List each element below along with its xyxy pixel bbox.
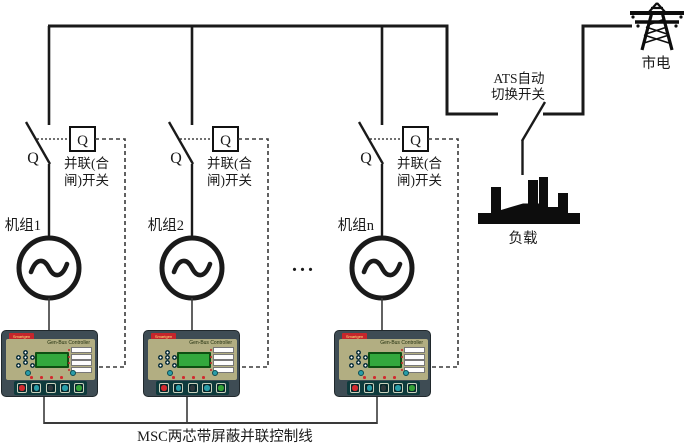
- status-led: [30, 376, 33, 379]
- nav-down-button: [356, 360, 361, 365]
- lcd-screen: [35, 352, 69, 368]
- unit-1-breaker-caption-line2: 闸)开关: [64, 173, 109, 188]
- unit-n-name-label: 机组n: [338, 217, 375, 234]
- nav-center-button: [23, 355, 28, 360]
- generator-bus-wire: [48, 26, 498, 114]
- unit-n-breaker-caption-line2: 闸)开关: [397, 173, 442, 188]
- stop-button: [350, 383, 360, 393]
- lcd-screen: [177, 352, 211, 368]
- test-button: [393, 383, 403, 393]
- auto-button: [188, 383, 198, 393]
- controller-button-row: [156, 381, 229, 395]
- aux-button-left: [349, 363, 354, 368]
- auto-button: [379, 383, 389, 393]
- unit-1-breaker-box-label: Q: [77, 133, 88, 149]
- status-led: [40, 376, 43, 379]
- msc-control-bus-caption: MSC两芯带屏蔽并联控制线: [137, 428, 313, 445]
- unit-2-breaker-box-label: Q: [220, 133, 231, 149]
- status-led: [172, 376, 175, 379]
- start-button: [407, 383, 417, 393]
- controller-model-label: Gen-Bus Controller: [380, 340, 423, 346]
- label-strip-2: [213, 354, 234, 360]
- utility-label: 市电: [642, 55, 671, 72]
- unit-1-breaker-caption-line1: 并联(合: [64, 156, 109, 171]
- unit-n-blade-label: Q: [360, 150, 372, 167]
- lcd-screen: [368, 352, 402, 368]
- unit-2-breaker-caption-line2: 闸)开关: [207, 173, 252, 188]
- status-led: [182, 376, 185, 379]
- unit-2-breaker-caption-line1: 并联(合: [207, 156, 252, 171]
- ats-label-line2: 切换开关: [491, 87, 545, 102]
- aux-button-left: [16, 363, 21, 368]
- status-led: [50, 376, 53, 379]
- label-strip-2: [404, 354, 425, 360]
- stop-button: [159, 383, 169, 393]
- controller-unit-2: Smartgen Gen-Bus Controller: [143, 330, 240, 397]
- status-led: [192, 376, 195, 379]
- manual-button: [173, 383, 183, 393]
- aux-button-left: [158, 363, 163, 368]
- nav-center-button: [356, 355, 361, 360]
- test-button: [202, 383, 212, 393]
- round-button-right: [212, 370, 218, 376]
- controller-button-row: [347, 381, 420, 395]
- load-factory-icon: [478, 177, 580, 224]
- label-strip-1: [71, 347, 92, 353]
- auto-button: [46, 383, 56, 393]
- start-button: [74, 383, 84, 393]
- label-strip-3: [404, 360, 425, 366]
- controller-button-row: [14, 381, 87, 395]
- ats-switch-blade: [522, 102, 545, 141]
- nav-center-button: [165, 355, 170, 360]
- round-button-right: [70, 370, 76, 376]
- controller-model-label: Gen-Bus Controller: [47, 340, 90, 346]
- ats-label-line1: ATS自动: [493, 71, 544, 86]
- utility-tower-icon: [630, 3, 684, 50]
- unit-n-breaker-box-label: Q: [410, 133, 421, 149]
- nav-left-button: [16, 355, 21, 360]
- start-button: [216, 383, 226, 393]
- unit-1-blade-label: Q: [27, 150, 39, 167]
- unit-2-name-label: 机组2: [148, 217, 184, 234]
- label-strip-3: [71, 360, 92, 366]
- nav-down-button: [23, 360, 28, 365]
- status-led: [60, 376, 63, 379]
- unit-2-blade-label: Q: [170, 150, 182, 167]
- ats-utility-side-wire: [543, 26, 632, 114]
- nav-left-button: [349, 355, 354, 360]
- stop-button: [17, 383, 27, 393]
- status-led: [393, 376, 396, 379]
- manual-button: [31, 383, 41, 393]
- nav-down-button: [165, 360, 170, 365]
- round-button-right: [403, 370, 409, 376]
- manual-button: [364, 383, 374, 393]
- controller-unit-1: Smartgen Gen-Bus Controller: [1, 330, 98, 397]
- controller-model-label: Gen-Bus Controller: [189, 340, 232, 346]
- label-strip-3: [213, 360, 234, 366]
- controller-unit-n: Smartgen Gen-Bus Controller: [334, 330, 431, 397]
- status-led: [373, 376, 376, 379]
- parallel-genset-diagram: Q Q 机组1 并联(合 闸)开关 Q Q 机组2 并联(合 闸)开关 ...: [0, 0, 700, 448]
- status-led: [202, 376, 205, 379]
- status-led: [363, 376, 366, 379]
- label-strip-1: [404, 347, 425, 353]
- status-led: [383, 376, 386, 379]
- unit-1-name-label: 机组1: [5, 217, 41, 234]
- load-label: 负载: [509, 230, 538, 247]
- label-strip-2: [71, 354, 92, 360]
- more-units-ellipsis: ...: [292, 254, 316, 276]
- test-button: [60, 383, 70, 393]
- ats-group: ATS自动 切换开关: [491, 26, 632, 175]
- nav-left-button: [158, 355, 163, 360]
- label-strip-1: [213, 347, 234, 353]
- unit-n-breaker-caption-line1: 并联(合: [397, 156, 442, 171]
